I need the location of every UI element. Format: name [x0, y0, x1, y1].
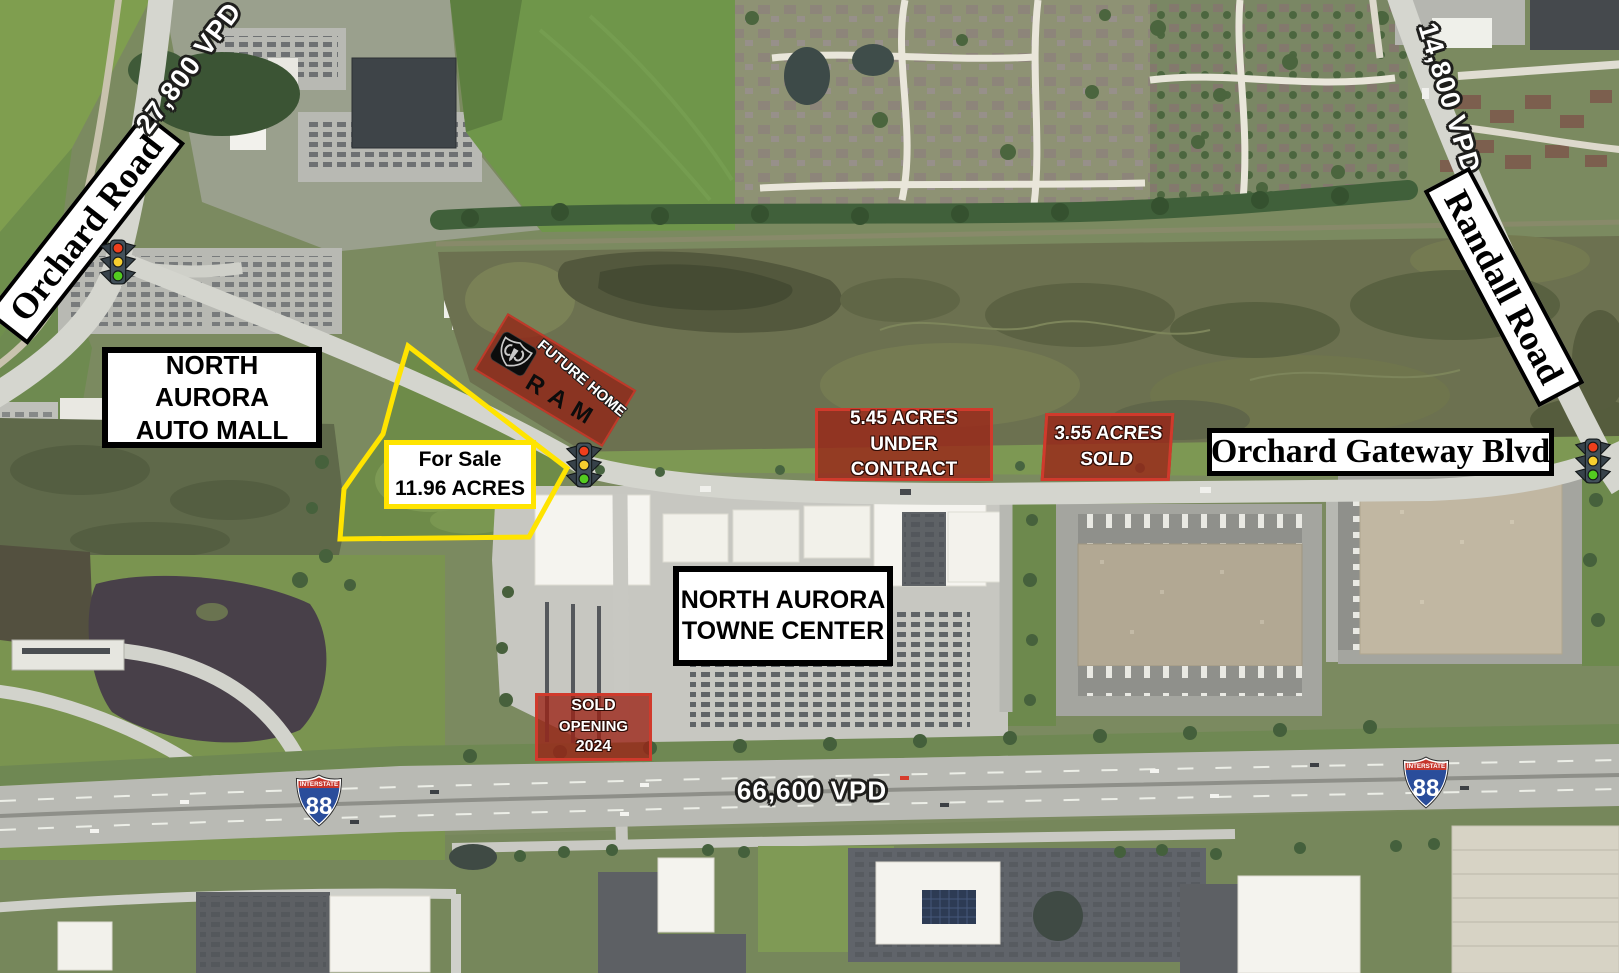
satellite-background — [0, 0, 1619, 973]
orchard-gateway-blvd-label: Orchard Gateway Blvd — [1207, 428, 1554, 476]
sold-east-line2: SOLD — [1079, 447, 1134, 473]
interstate-text: INTERSTATE — [300, 781, 338, 788]
auto-mall-line2: AUTO MALL — [136, 414, 289, 447]
i88-vpd-label: 66,600 VPD — [737, 776, 887, 807]
i88-vpd-text: 66,600 VPD — [737, 776, 887, 806]
auto-mall-line1: NORTH AURORA — [108, 349, 316, 414]
interstate-88-shield-icon-west: INTERSTATE 88 — [295, 772, 343, 829]
traffic-light-icon-orchard — [97, 239, 139, 285]
traffic-light-icon-gateway-west — [563, 442, 605, 488]
sold-outlot-line2: OPENING — [559, 717, 628, 737]
sold-outlot-parcel: SOLD OPENING 2024 — [535, 693, 652, 761]
towne-center-label: NORTH AURORA TOWNE CENTER — [673, 566, 893, 666]
under-contract-line1: 5.45 ACRES — [850, 406, 958, 432]
interstate-88-shield-icon-east: INTERSTATE 88 — [1402, 755, 1450, 810]
under-contract-parcel: 5.45 ACRES UNDER CONTRACT — [815, 408, 993, 481]
aerial-map: FUTURE HOME RAM Orchard Road 27,800 VPD … — [0, 0, 1619, 973]
ram-logo-icon — [488, 329, 540, 379]
for-sale-line2: 11.96 ACRES — [395, 475, 525, 503]
for-sale-line1: For Sale — [419, 446, 502, 474]
under-contract-line2: UNDER CONTRACT — [818, 432, 990, 483]
sold-east-line1: 3.55 ACRES — [1053, 421, 1163, 447]
traffic-light-icon-gateway-east — [1572, 438, 1614, 484]
sold-outlot-line3: 2024 — [576, 737, 612, 758]
auto-mall-label: NORTH AURORA AUTO MALL — [102, 347, 322, 448]
residential-subdivision — [735, 0, 1408, 206]
route-number-text: 88 — [1413, 775, 1440, 802]
route-number-text: 88 — [306, 793, 333, 820]
towne-center-line2: TOWNE CENTER — [682, 616, 884, 647]
orchard-gateway-blvd-text: Orchard Gateway Blvd — [1211, 433, 1550, 471]
sold-outlot-line1: SOLD — [571, 696, 615, 717]
towne-center-line1: NORTH AURORA — [681, 585, 886, 616]
for-sale-label: For Sale 11.96 ACRES — [384, 440, 536, 509]
sold-east-parcel: 3.55 ACRES SOLD — [1041, 413, 1175, 481]
interstate-text: INTERSTATE — [1407, 763, 1445, 770]
toll-plaza — [12, 640, 124, 670]
